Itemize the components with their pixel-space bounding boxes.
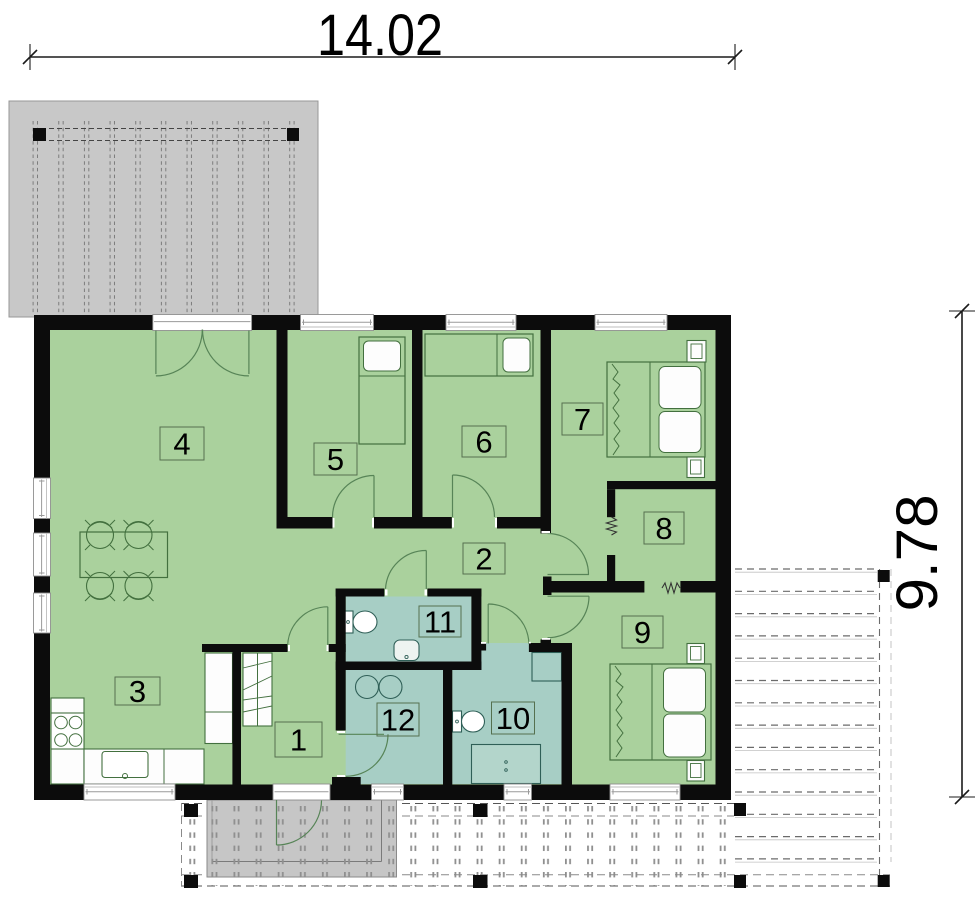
svg-text:4: 4	[173, 427, 190, 462]
svg-text:6: 6	[475, 425, 492, 460]
svg-text:12: 12	[381, 703, 415, 738]
svg-text:11: 11	[424, 605, 456, 640]
svg-text:3: 3	[129, 674, 146, 709]
svg-text:8: 8	[655, 511, 672, 546]
svg-text:9.78: 9.78	[885, 495, 950, 612]
svg-text:2: 2	[475, 542, 492, 577]
svg-text:1: 1	[290, 723, 307, 758]
svg-text:7: 7	[574, 402, 591, 437]
svg-text:5: 5	[327, 442, 344, 477]
svg-text:14.02: 14.02	[317, 3, 443, 68]
svg-text:9: 9	[634, 615, 651, 650]
svg-text:10: 10	[496, 701, 530, 736]
